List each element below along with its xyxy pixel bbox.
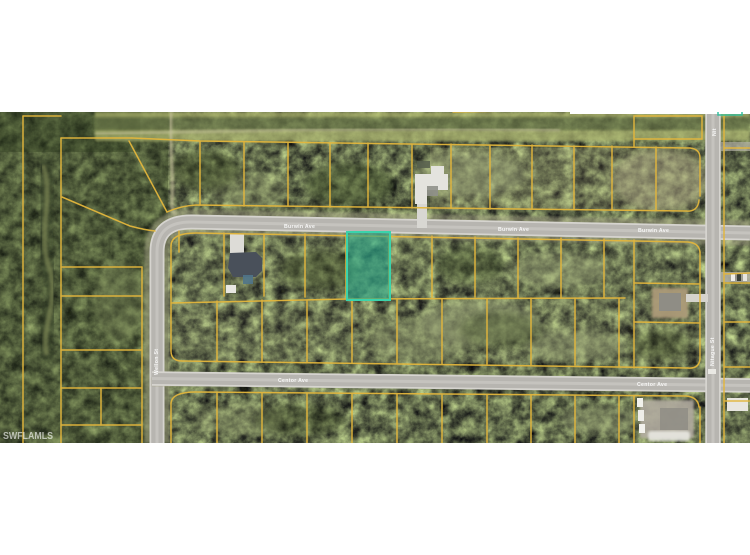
svg-text:Centor Ave: Centor Ave bbox=[637, 382, 667, 388]
svg-text:Centor Ave: Centor Ave bbox=[278, 378, 308, 384]
svg-text:Burwin Ave: Burwin Ave bbox=[638, 228, 669, 234]
svg-text:Burwin Ave: Burwin Ave bbox=[498, 227, 529, 233]
svg-text:Wellon St: Wellon St bbox=[154, 349, 160, 375]
svg-text:Nitague St: Nitague St bbox=[710, 337, 716, 366]
svg-text:Burwin Ave: Burwin Ave bbox=[284, 224, 315, 230]
svg-text:Nit: Nit bbox=[712, 128, 718, 136]
svg-text:SWFLAMLS: SWFLAMLS bbox=[3, 430, 53, 442]
